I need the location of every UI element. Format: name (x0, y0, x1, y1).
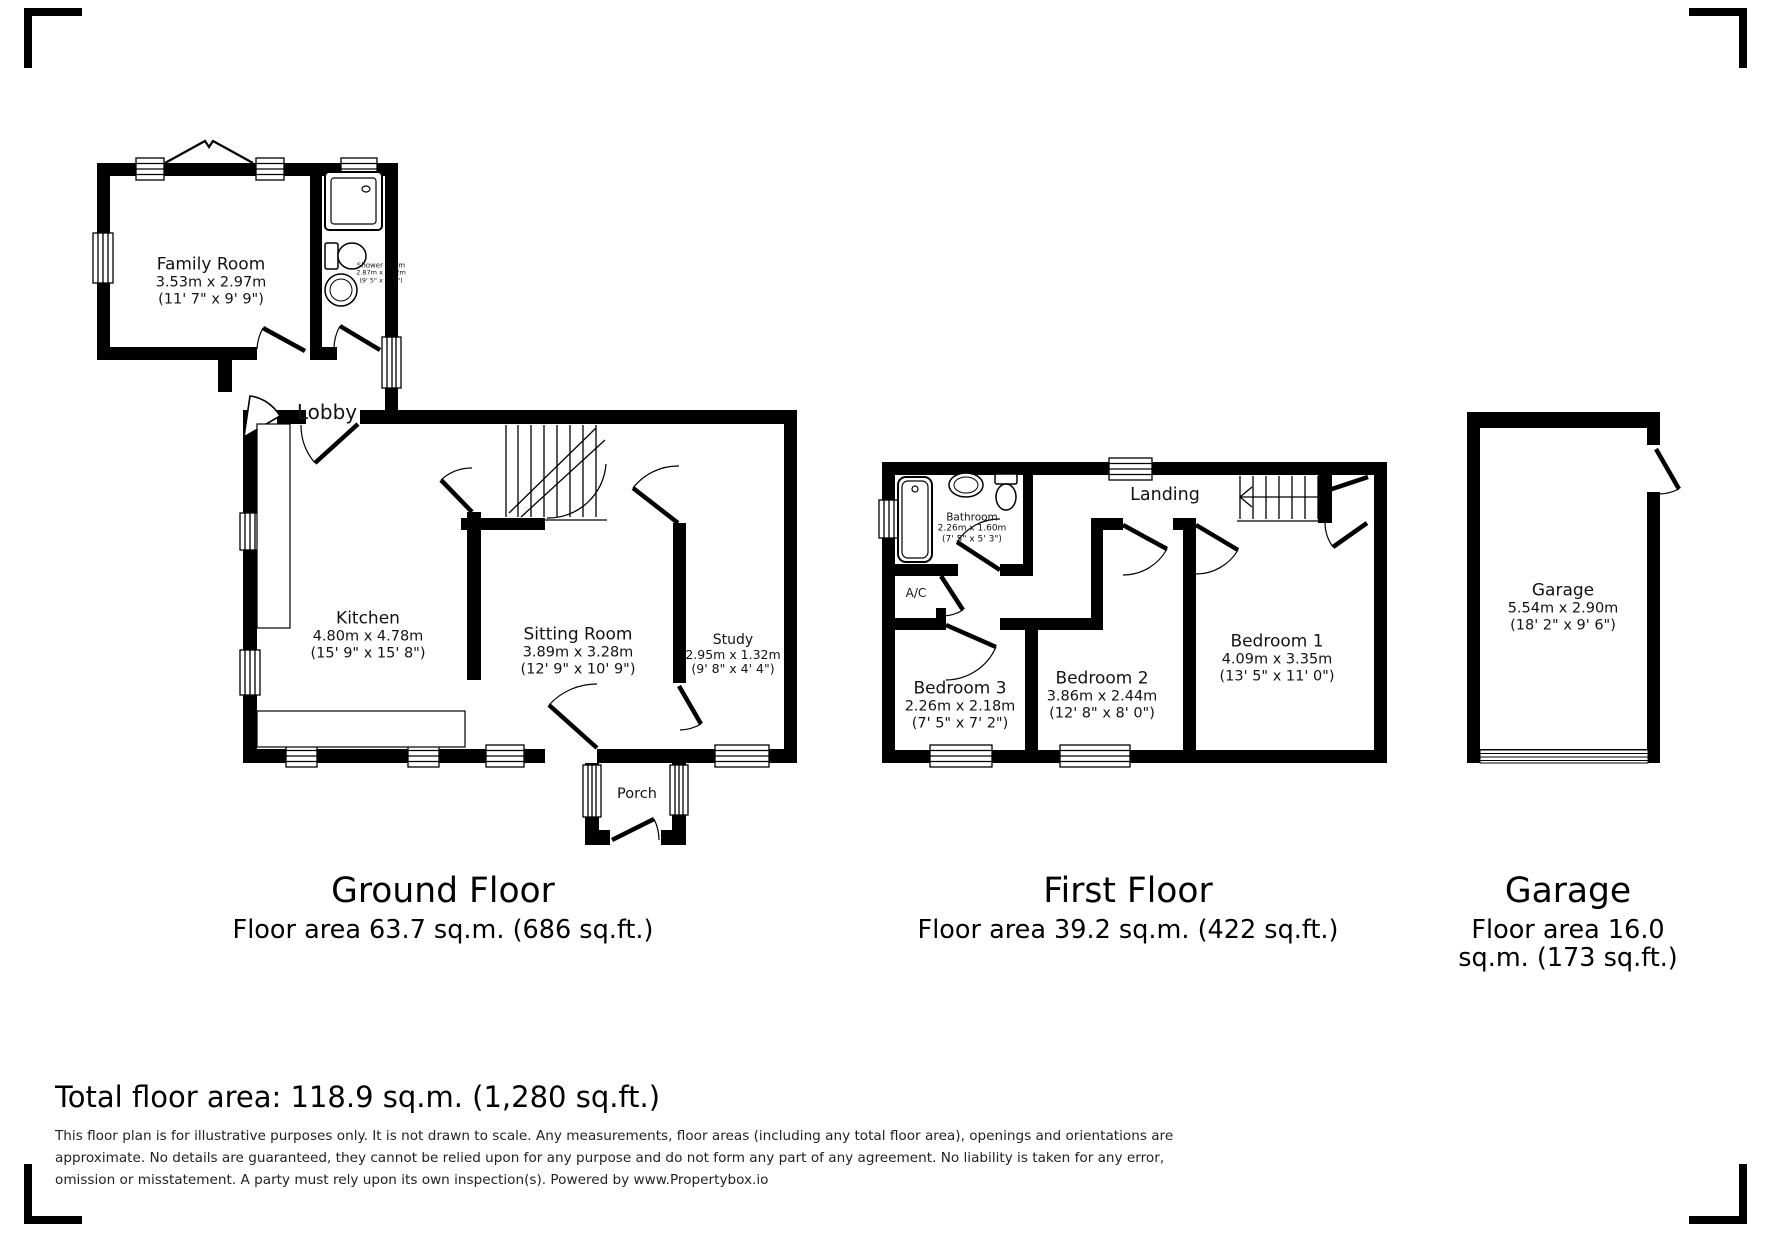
ground-floor-plan (93, 141, 797, 845)
garage-area: Floor area 16.0 sq.m. (173 sq.ft.) (1458, 916, 1678, 972)
garage-area-line2: sq.m. (173 sq.ft.) (1458, 944, 1678, 972)
bathtub-icon (898, 477, 932, 562)
disclaimer-line-3: omission or misstatement. A party must r… (55, 1170, 1173, 1192)
label-porch: Porch (617, 786, 657, 802)
total-floor-area: Total floor area: 118.9 sq.m. (1,280 sq.… (55, 1080, 660, 1114)
label-ac: A/C (906, 586, 927, 600)
door-icon (1656, 449, 1679, 494)
label-bedroom-1: Bedroom 1 4.09m x 3.35m (13' 5" x 11' 0"… (1220, 632, 1335, 685)
stairs-icon (506, 425, 607, 520)
counter (257, 424, 465, 747)
label-garage-room: Garage 5.54m x 2.90m (18' 2" x 9' 6") (1508, 581, 1619, 634)
toilet-icon (995, 474, 1017, 510)
disclaimer: This floor plan is for illustrative purp… (55, 1126, 1173, 1191)
stairs-icon (1237, 476, 1332, 521)
garage-door-icon (1480, 750, 1648, 763)
bay-icon (165, 141, 253, 163)
label-family-room: Family Room 3.53m x 2.97m (11' 7" x 9' 9… (156, 255, 267, 308)
label-sitting-room: Sitting Room 3.89m x 3.28m (12' 9" x 10'… (521, 625, 636, 678)
first-floor-title: First Floor (1043, 872, 1212, 910)
basin-icon (325, 274, 357, 306)
label-bedroom-3: Bedroom 3 2.26m x 2.18m (7' 5" x 7' 2") (905, 679, 1016, 732)
label-landing: Landing (1130, 485, 1200, 505)
first-floor-area: Floor area 39.2 sq.m. (422 sq.ft.) (918, 916, 1339, 944)
floorplan-image: Family Room 3.53m x 2.97m (11' 7" x 9' 9… (0, 0, 1771, 1239)
label-shower-room: Shower Room 2.87m x 1.52m (9' 5" x 5' 0"… (356, 262, 406, 285)
garage-area-line1: Floor area 16.0 (1458, 916, 1678, 944)
label-kitchen: Kitchen 4.80m x 4.78m (15' 9" x 15' 8") (311, 609, 426, 662)
ground-floor-title: Ground Floor (331, 872, 555, 910)
label-bathroom: Bathroom 2.26m x 1.60m (7' 5" x 5' 3") (938, 512, 1007, 545)
shower-tray-icon (325, 172, 382, 230)
floorplan-drawing (0, 0, 1771, 1239)
garage-title: Garage (1505, 872, 1631, 910)
disclaimer-line-1: This floor plan is for illustrative purp… (55, 1126, 1173, 1148)
ground-floor-area: Floor area 63.7 sq.m. (686 sq.ft.) (233, 916, 654, 944)
disclaimer-line-2: approximate. No details are guaranteed, … (55, 1148, 1173, 1170)
label-study: Study 2.95m x 1.32m (9' 8" x 4' 4") (685, 632, 780, 676)
label-bedroom-2: Bedroom 2 3.86m x 2.44m (12' 8" x 8' 0") (1047, 669, 1158, 722)
label-lobby: Lobby (297, 400, 357, 424)
basin-icon (949, 473, 983, 497)
